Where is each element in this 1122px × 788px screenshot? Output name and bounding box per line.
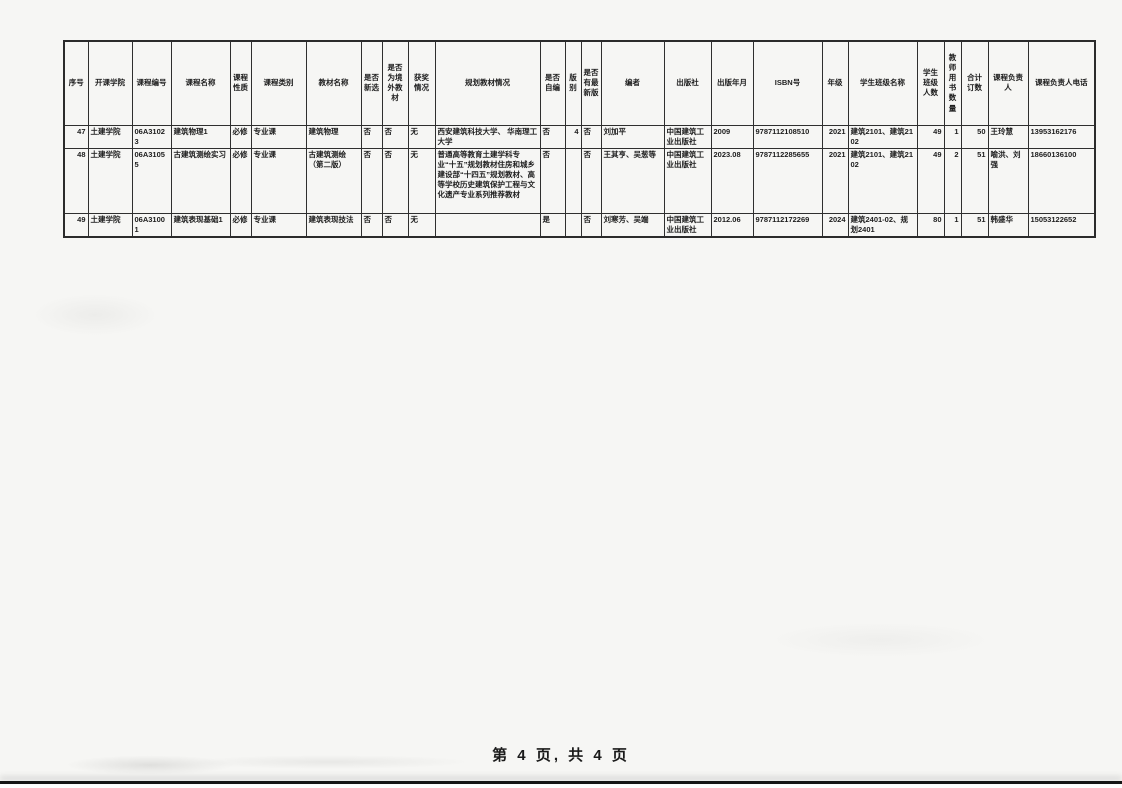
table-cell: 土建学院 — [88, 125, 132, 148]
table-cell: 9787112172269 — [753, 213, 822, 237]
table-cell: 06A31055 — [132, 148, 171, 213]
table-cell: 建筑表现技法 — [306, 213, 361, 237]
column-header: 课程编号 — [132, 41, 171, 125]
table-cell: 刘加平 — [601, 125, 664, 148]
table-cell: 建筑2101、建筑2102 — [848, 125, 917, 148]
table-row: 49土建学院06A31001建筑表现基础1必修专业课建筑表现技法否否无是否刘寒芳… — [64, 213, 1095, 237]
table-cell: 否 — [540, 125, 565, 148]
table-cell: 王其亨、吴葱等 — [601, 148, 664, 213]
textbook-order-table-container: 序号开课学院课程编号课程名称课程性质课程类别教材名称是否新选是否为境外教材获奖情… — [63, 40, 1096, 238]
table-cell: 2024 — [822, 213, 848, 237]
table-cell: 土建学院 — [88, 213, 132, 237]
table-cell: 否 — [581, 213, 601, 237]
table-cell: 是 — [540, 213, 565, 237]
table-cell: 必修 — [230, 148, 251, 213]
column-header: 编者 — [601, 41, 664, 125]
column-header: 学生班级名称 — [848, 41, 917, 125]
table-cell: 建筑2401-02、规划2401 — [848, 213, 917, 237]
column-header: 获奖情况 — [408, 41, 435, 125]
column-header: 序号 — [64, 41, 88, 125]
table-cell: 9787112108510 — [753, 125, 822, 148]
table-cell: 否 — [361, 125, 382, 148]
table-cell: 47 — [64, 125, 88, 148]
column-header: 是否为境外教材 — [382, 41, 408, 125]
column-header: 规划教材情况 — [435, 41, 540, 125]
table-cell: 51 — [961, 213, 988, 237]
table-cell: 2009 — [711, 125, 753, 148]
table-cell: 2021 — [822, 125, 848, 148]
table-cell: 建筑2101、建筑2102 — [848, 148, 917, 213]
table-cell: 2023.08 — [711, 148, 753, 213]
table-cell: 刘寒芳、吴端 — [601, 213, 664, 237]
table-cell — [565, 213, 581, 237]
table-cell: 否 — [382, 148, 408, 213]
table-cell: 西安建筑科技大学、 华南理工大学 — [435, 125, 540, 148]
column-header: 合计订数 — [961, 41, 988, 125]
table-row: 47土建学院06A31023建筑物理1必修专业课建筑物理否否无西安建筑科技大学、… — [64, 125, 1095, 148]
table-cell: 否 — [540, 148, 565, 213]
column-header: 课程名称 — [171, 41, 230, 125]
table-cell: 06A31023 — [132, 125, 171, 148]
column-header: 出版年月 — [711, 41, 753, 125]
table-cell: 土建学院 — [88, 148, 132, 213]
page-edge-shadow — [0, 781, 1122, 784]
table-cell: 中国建筑工业出版社 — [664, 125, 711, 148]
table-header-row: 序号开课学院课程编号课程名称课程性质课程类别教材名称是否新选是否为境外教材获奖情… — [64, 41, 1095, 125]
table-cell: 否 — [581, 148, 601, 213]
column-header: 版别 — [565, 41, 581, 125]
table-cell: 无 — [408, 125, 435, 148]
table-cell: 建筑表现基础1 — [171, 213, 230, 237]
table-cell: 48 — [64, 148, 88, 213]
table-cell: 专业课 — [251, 148, 306, 213]
column-header: 是否自编 — [540, 41, 565, 125]
column-header: 课程性质 — [230, 41, 251, 125]
table-cell: 否 — [361, 213, 382, 237]
table-cell: 80 — [917, 213, 944, 237]
column-header: 年级 — [822, 41, 848, 125]
table-cell: 中国建筑工业出版社 — [664, 213, 711, 237]
column-header: 开课学院 — [88, 41, 132, 125]
table-cell: 13953162176 — [1028, 125, 1095, 148]
table-cell: 2 — [944, 148, 961, 213]
table-cell: 否 — [382, 125, 408, 148]
column-header: ISBN号 — [753, 41, 822, 125]
column-header: 出版社 — [664, 41, 711, 125]
table-cell: 18660136100 — [1028, 148, 1095, 213]
table-cell: 古建筑测绘实习 — [171, 148, 230, 213]
table-cell: 49 — [917, 148, 944, 213]
table-body: 47土建学院06A31023建筑物理1必修专业课建筑物理否否无西安建筑科技大学、… — [64, 125, 1095, 237]
table-cell: 必修 — [230, 213, 251, 237]
table-cell: 普通高等教育土建学科专业“十五”规划教材住房和城乡建设部“十四五”规划教材、高等… — [435, 148, 540, 213]
column-header: 课程负责人 — [988, 41, 1028, 125]
table-cell: 49 — [917, 125, 944, 148]
table-cell: 15053122652 — [1028, 213, 1095, 237]
table-cell: 喻洪、刘强 — [988, 148, 1028, 213]
table-cell: 否 — [361, 148, 382, 213]
table-cell: 否 — [382, 213, 408, 237]
table-cell: 否 — [581, 125, 601, 148]
table-cell: 古建筑测绘（第二版） — [306, 148, 361, 213]
table-cell: 51 — [961, 148, 988, 213]
column-header: 教材名称 — [306, 41, 361, 125]
table-cell: 必修 — [230, 125, 251, 148]
column-header: 学生班级人数 — [917, 41, 944, 125]
table-cell: 2021 — [822, 148, 848, 213]
table-cell: 专业课 — [251, 125, 306, 148]
scanned-document-page: 序号开课学院课程编号课程名称课程性质课程类别教材名称是否新选是否为境外教材获奖情… — [0, 0, 1122, 782]
table-cell: 无 — [408, 148, 435, 213]
table-cell: 无 — [408, 213, 435, 237]
table-cell: 中国建筑工业出版社 — [664, 148, 711, 213]
table-cell: 2012.06 — [711, 213, 753, 237]
column-header: 课程负责人电话 — [1028, 41, 1095, 125]
column-header: 是否新选 — [361, 41, 382, 125]
table-cell: 王玲慧 — [988, 125, 1028, 148]
table-cell: 专业课 — [251, 213, 306, 237]
table-row: 48土建学院06A31055古建筑测绘实习必修专业课古建筑测绘（第二版）否否无普… — [64, 148, 1095, 213]
page-number: 第 4 页, 共 4 页 — [0, 744, 1122, 765]
column-header: 是否有最新版 — [581, 41, 601, 125]
table-cell: 建筑物理1 — [171, 125, 230, 148]
table-cell: 49 — [64, 213, 88, 237]
table-cell: 韩盛华 — [988, 213, 1028, 237]
table-cell: 06A31001 — [132, 213, 171, 237]
table-cell: 1 — [944, 213, 961, 237]
column-header: 课程类别 — [251, 41, 306, 125]
table-cell: 1 — [944, 125, 961, 148]
course-textbook-table: 序号开课学院课程编号课程名称课程性质课程类别教材名称是否新选是否为境外教材获奖情… — [63, 40, 1096, 238]
table-cell — [565, 148, 581, 213]
table-cell: 50 — [961, 125, 988, 148]
table-cell — [435, 213, 540, 237]
table-cell: 4 — [565, 125, 581, 148]
table-cell: 建筑物理 — [306, 125, 361, 148]
column-header: 教师用书数量 — [944, 41, 961, 125]
table-cell: 9787112285655 — [753, 148, 822, 213]
